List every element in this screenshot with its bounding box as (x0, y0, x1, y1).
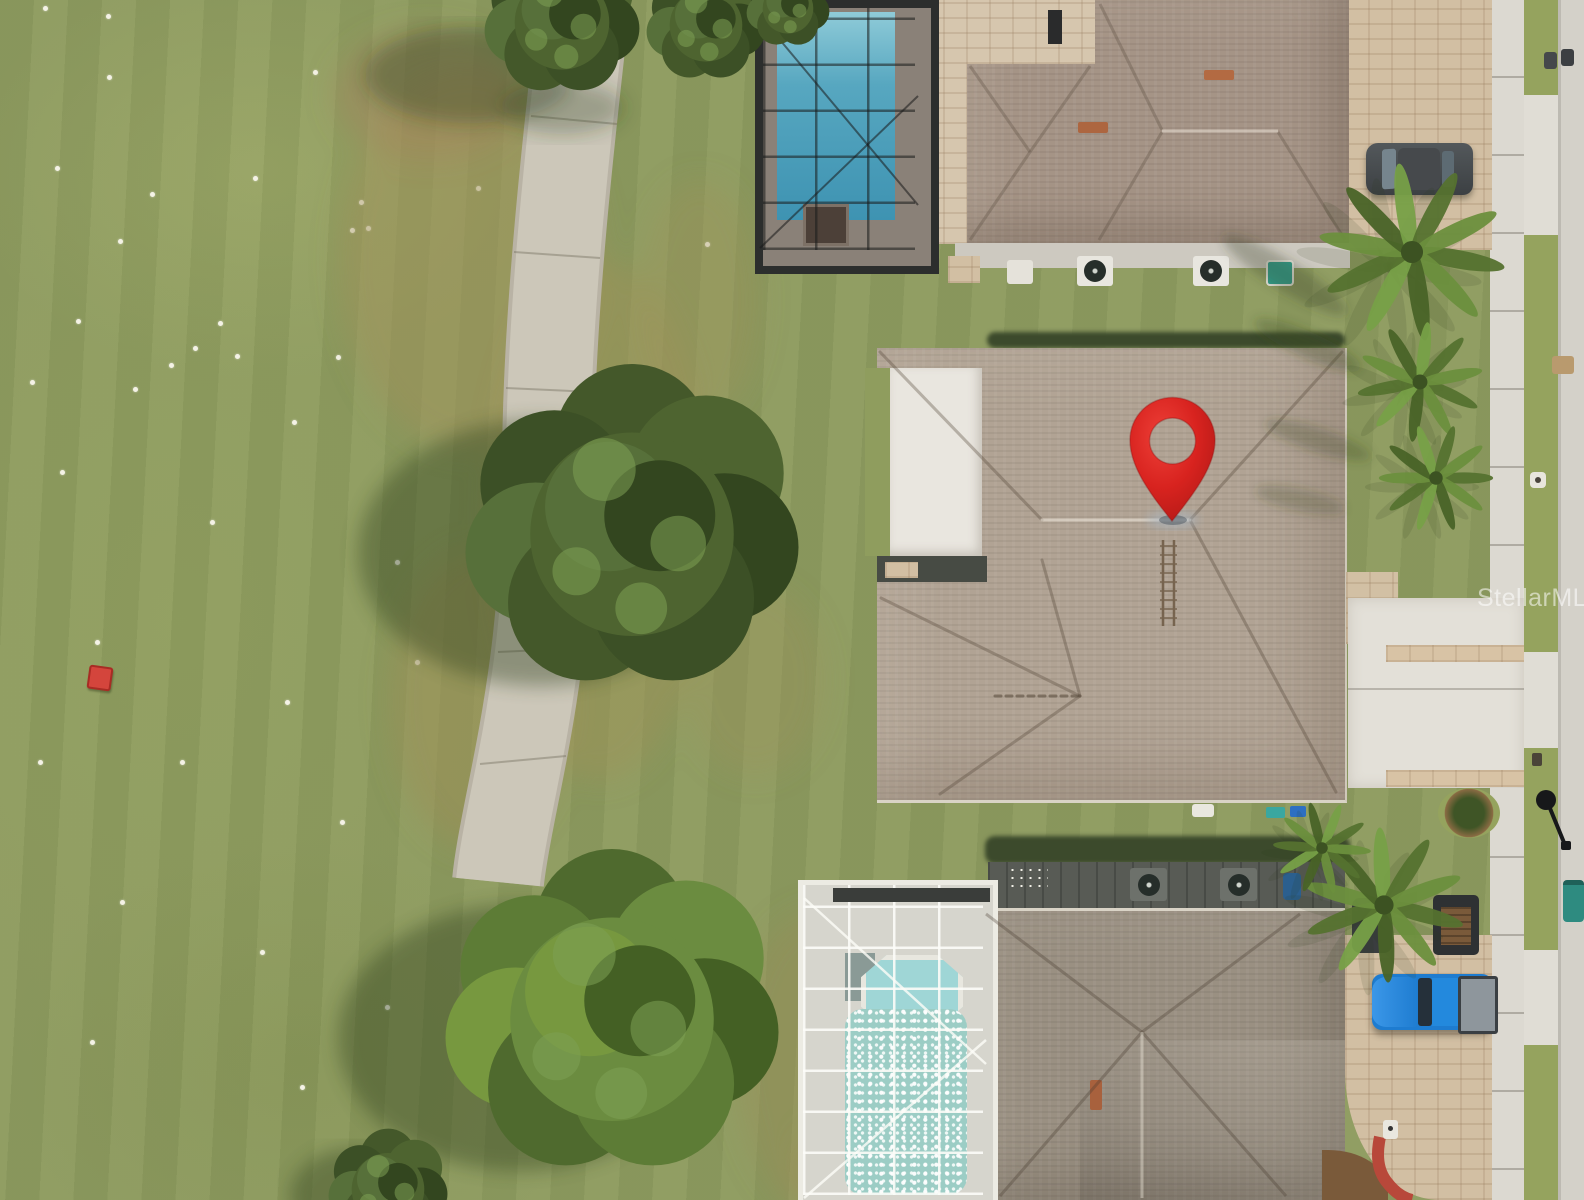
organic-overlay (0, 0, 1584, 1200)
palm-tree (1365, 425, 1493, 541)
bottom-roof-ridges (986, 914, 1300, 1198)
palm-tree (1341, 322, 1483, 453)
enclosure-braces (760, 16, 986, 1198)
location-pin-body (1130, 398, 1215, 522)
palm-tree (1295, 162, 1506, 356)
top-roof-ridges (970, 4, 1345, 240)
tree (358, 364, 798, 686)
tree (338, 849, 778, 1171)
trees-layer (290, 0, 829, 1200)
stellar-mls-watermark: StellarMLS (1477, 584, 1584, 613)
aerial-photo-stage: StellarMLS (0, 0, 1584, 1200)
location-pin (1130, 398, 1215, 530)
subject-roof-ridges (880, 352, 1342, 794)
roof-ladder (1160, 540, 1177, 626)
